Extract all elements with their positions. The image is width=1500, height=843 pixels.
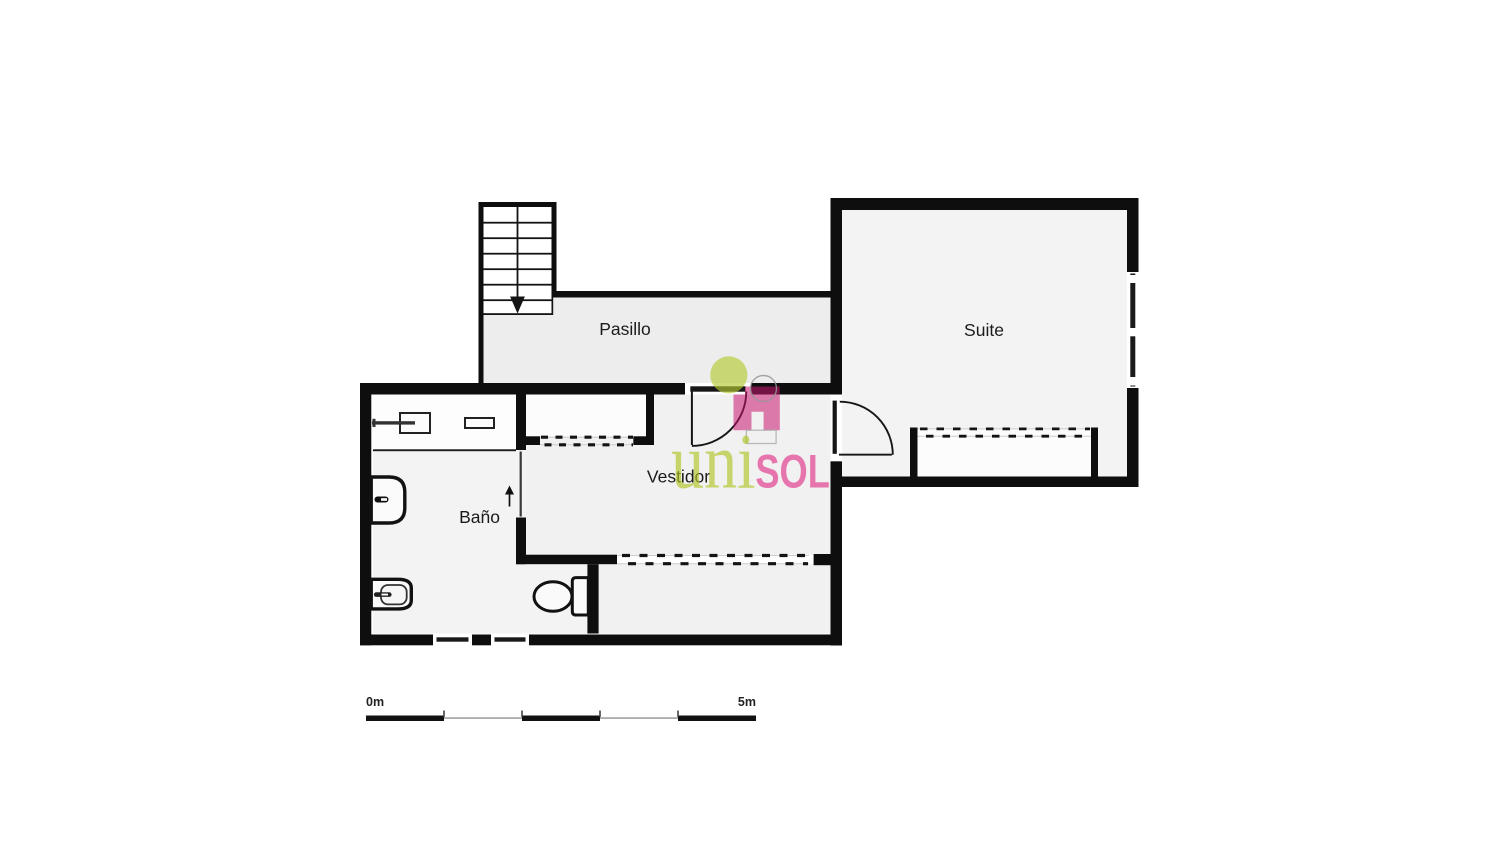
- svg-text:uni: uni: [671, 418, 756, 505]
- svg-text:Suite: Suite: [964, 320, 1004, 340]
- svg-text:0m: 0m: [366, 695, 384, 709]
- svg-text:5m: 5m: [738, 695, 756, 709]
- svg-text:Baño: Baño: [459, 507, 500, 527]
- svg-text:Pasillo: Pasillo: [599, 319, 651, 339]
- svg-text:SOL: SOL: [755, 446, 830, 499]
